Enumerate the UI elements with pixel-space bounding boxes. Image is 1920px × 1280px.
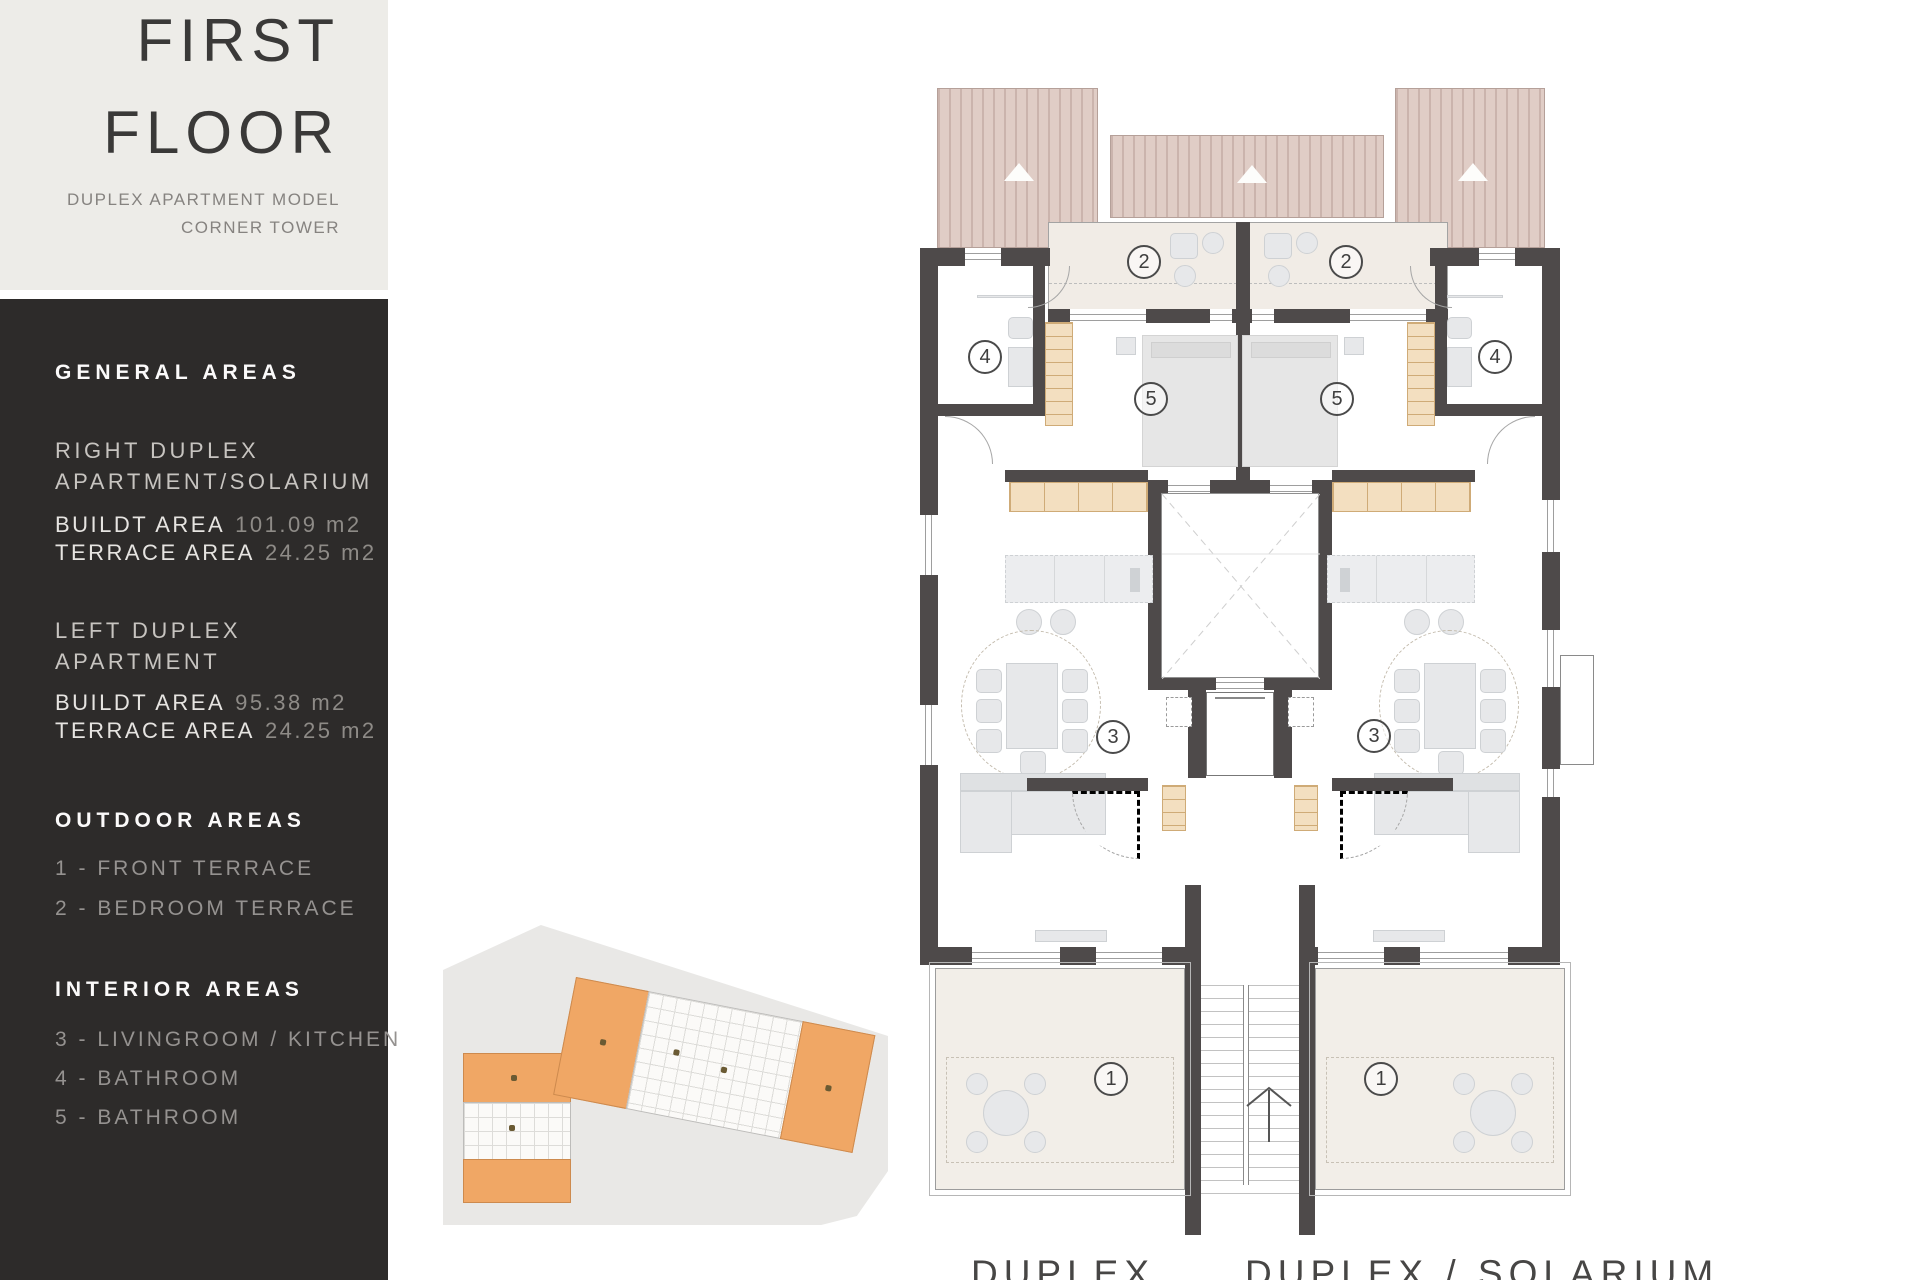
room-marker-bathroom-5: 5 [1134, 382, 1168, 416]
unit-label-duplex-solarium: DUPLEX / SOLARIUM [1245, 1253, 1645, 1280]
sliding-door [1096, 947, 1162, 965]
site-marker-dot [511, 1075, 517, 1081]
terrace-chair [1296, 232, 1318, 254]
site-marker-dot [509, 1125, 515, 1131]
direction-arrow-icon [1241, 1080, 1297, 1150]
stair-wall [1299, 885, 1315, 1235]
page-title-line2: FLOOR [103, 98, 340, 167]
dining-table [1424, 663, 1476, 749]
marker-number: 4 [1489, 346, 1500, 369]
window [1270, 480, 1312, 493]
bathroom-vanity [1008, 347, 1033, 387]
built-area-label: BUILDT AREA [55, 512, 225, 537]
window [1350, 309, 1426, 323]
tv-sideboard [1035, 930, 1107, 942]
entry-door-swing [1072, 791, 1140, 859]
window [920, 515, 938, 575]
window [965, 248, 1001, 266]
dining-chair [976, 669, 1002, 693]
elevator-door [1215, 697, 1265, 699]
terrace-chair [1511, 1073, 1533, 1095]
wall [1332, 470, 1475, 482]
hall-cabinet [1294, 785, 1318, 831]
marker-number: 2 [1138, 251, 1149, 274]
terrace-chair [1268, 265, 1290, 287]
kitchen-sink [1340, 568, 1350, 592]
terrace-chair [966, 1131, 988, 1153]
counter-divider [1104, 556, 1105, 602]
stair-wall [1185, 885, 1201, 1235]
site-building-left-orange-bottom [463, 1159, 571, 1203]
duplex-stair-up [1045, 322, 1073, 426]
marker-number: 1 [1105, 1068, 1116, 1091]
room-marker-bathroom-4: 4 [968, 340, 1002, 374]
built-area-value: 101.09 m2 [235, 512, 361, 537]
counter-divider [1376, 556, 1377, 602]
dining-chair [976, 699, 1002, 723]
shower-screen [977, 295, 1033, 298]
terrace-round-table [983, 1090, 1029, 1136]
terrace-chair [1174, 265, 1196, 287]
bed-pillow [1251, 342, 1331, 358]
site-building-long [553, 977, 875, 1153]
front-terrace-right [1315, 968, 1565, 1190]
terrace-chair [1202, 232, 1224, 254]
marker-number: 3 [1107, 726, 1118, 749]
room-marker-bathroom-5: 5 [1320, 382, 1354, 416]
marker-number: 5 [1331, 388, 1342, 411]
terrace-table [1264, 233, 1292, 259]
sofa-chaise [1468, 791, 1520, 853]
window [1070, 309, 1146, 323]
dining-chair [1394, 669, 1420, 693]
nightstand [1116, 337, 1136, 355]
bed-pillow [1151, 342, 1231, 358]
left-duplex-built-row: BUILDT AREA95.38 m2 [55, 689, 377, 717]
window [1168, 480, 1210, 493]
terrace-chair [966, 1073, 988, 1095]
marker-number: 1 [1375, 1068, 1386, 1091]
front-terrace-left [935, 968, 1185, 1190]
page-title-line1: FIRST [137, 6, 340, 75]
window [1420, 947, 1508, 965]
dining-chair [1062, 699, 1088, 723]
room-marker-bedroom-terrace: 2 [1329, 245, 1363, 279]
floor-plan: 2 2 4 4 5 5 3 3 1 1 [920, 85, 1610, 1280]
site-building-left-orange-top [463, 1053, 571, 1103]
wall [1542, 248, 1560, 965]
legend-item-livingroom-kitchen: 3 - LIVINGROOM / KITCHEN [55, 1028, 401, 1052]
terrace-chair [1453, 1131, 1475, 1153]
terrace-area-value: 24.25 m2 [265, 540, 377, 565]
left-duplex-terrace-row: TERRACE AREA24.25 m2 [55, 717, 377, 745]
outdoor-areas-heading: OUTDOOR AREAS [55, 809, 306, 833]
page-subtitle-line2: CORNER TOWER [181, 218, 340, 238]
left-duplex-name-line2: APARTMENT [55, 646, 241, 677]
kitchen-stool [1404, 609, 1430, 635]
side-balcony [1560, 655, 1594, 765]
dining-chair [1394, 729, 1420, 753]
terrace-area-label: TERRACE AREA [55, 718, 255, 743]
terrace-chair [1024, 1073, 1046, 1095]
wall [1447, 404, 1542, 416]
right-duplex-name-line2: APARTMENT/SOLARIUM [55, 466, 373, 497]
built-area-label: BUILDT AREA [55, 690, 225, 715]
wall [1005, 470, 1148, 482]
wall [938, 404, 1033, 416]
entry-door-swing [1340, 791, 1408, 859]
shaft-dashed-box [1166, 697, 1192, 727]
door-swing [945, 416, 993, 464]
door-swing [1487, 416, 1535, 464]
window [1542, 630, 1560, 687]
dining-chair [1438, 751, 1464, 775]
legend-item-bathroom-5: 5 - BATHROOM [55, 1106, 241, 1130]
dining-table [1006, 663, 1058, 749]
window [920, 705, 938, 765]
right-duplex-terrace-row: TERRACE AREA24.25 m2 [55, 539, 377, 567]
shower-screen [1447, 295, 1503, 298]
marker-number: 4 [979, 346, 990, 369]
dining-chair [1394, 699, 1420, 723]
wall [920, 248, 938, 965]
roof-vent-icon [1458, 163, 1488, 181]
dining-area [961, 630, 1101, 780]
roof-vent-icon [1237, 165, 1267, 183]
kitchen-sink [1130, 568, 1140, 592]
floorplan-sheet: { "title_block": { "title_line1": "FIRST… [0, 0, 1920, 1280]
closet [1332, 482, 1471, 512]
toilet [1008, 317, 1033, 339]
kitchen-stool [1050, 609, 1076, 635]
terrace-chair [1511, 1131, 1533, 1153]
window [1210, 309, 1232, 323]
hall-cabinet [1162, 785, 1186, 831]
marker-number: 2 [1340, 251, 1351, 274]
window [1542, 769, 1560, 797]
general-areas-heading: GENERAL AREAS [55, 361, 301, 385]
unit-label-duplex: DUPLEX [938, 1253, 1188, 1280]
marker-number: 5 [1145, 388, 1156, 411]
dining-chair [1020, 751, 1046, 775]
site-building-left-white-mid [463, 1102, 571, 1160]
terrace-area-label: TERRACE AREA [55, 540, 255, 565]
right-duplex-areas: BUILDT AREA101.09 m2 TERRACE AREA24.25 m… [55, 511, 377, 567]
legend-item-bedroom-terrace: 2 - BEDROOM TERRACE [55, 897, 357, 921]
staircase [1201, 900, 1299, 1265]
terrace-area-value: 24.25 m2 [265, 718, 377, 743]
dining-chair [1062, 729, 1088, 753]
roof-vent-icon [1004, 163, 1034, 181]
page-subtitle-line1: DUPLEX APARTMENT MODEL [67, 190, 340, 210]
legend-item-front-terrace: 1 - FRONT TERRACE [55, 857, 314, 881]
dining-chair [1062, 669, 1088, 693]
room-marker-front-terrace: 1 [1094, 1062, 1128, 1096]
light-well [1161, 493, 1319, 678]
title-block: FIRST FLOOR DUPLEX APARTMENT MODEL CORNE… [0, 0, 388, 290]
right-duplex-name: RIGHT DUPLEX APARTMENT/SOLARIUM [55, 435, 373, 497]
legend-sidebar: GENERAL AREAS RIGHT DUPLEX APARTMENT/SOL… [0, 299, 388, 1280]
dining-chair [1480, 729, 1506, 753]
sofa-chaise [960, 791, 1012, 853]
kitchen-counter [1327, 555, 1475, 603]
counter-divider [1426, 556, 1427, 602]
room-marker-living-kitchen: 3 [1096, 720, 1130, 754]
right-duplex-name-line1: RIGHT DUPLEX [55, 435, 373, 466]
dining-chair [1480, 699, 1506, 723]
dining-chair [976, 729, 1002, 753]
tv-sideboard [1373, 930, 1445, 942]
wall [1027, 778, 1148, 791]
room-marker-bedroom-terrace: 2 [1127, 245, 1161, 279]
wall [1332, 778, 1453, 791]
toilet [1447, 317, 1472, 339]
shaft-dashed-box [1288, 697, 1314, 727]
window [972, 947, 1060, 965]
site-building-long-white-mid [626, 991, 804, 1139]
right-duplex-built-row: BUILDT AREA101.09 m2 [55, 511, 377, 539]
dining-area [1379, 630, 1519, 780]
terrace-round-table [1470, 1090, 1516, 1136]
sliding-door [1318, 947, 1384, 965]
site-plan-thumbnail [443, 925, 888, 1225]
elevator [1206, 692, 1274, 776]
light-well-x [1162, 494, 1320, 679]
counter-divider [1054, 556, 1055, 602]
window [1542, 500, 1560, 552]
room-marker-front-terrace: 1 [1364, 1062, 1398, 1096]
terrace-table [1170, 233, 1198, 259]
duplex-stair-up [1407, 322, 1435, 426]
terrace-chair [1453, 1073, 1475, 1095]
interior-areas-heading: INTERIOR AREAS [55, 978, 304, 1002]
room-marker-bathroom-4: 4 [1478, 340, 1512, 374]
bathroom-vanity [1447, 347, 1472, 387]
dining-chair [1480, 669, 1506, 693]
window [1479, 248, 1515, 266]
left-duplex-name: LEFT DUPLEX APARTMENT [55, 615, 241, 677]
marker-number: 3 [1368, 725, 1379, 748]
left-duplex-name-line1: LEFT DUPLEX [55, 615, 241, 646]
nightstand [1344, 337, 1364, 355]
window [1252, 309, 1274, 323]
built-area-value: 95.38 m2 [235, 690, 347, 715]
closet [1009, 482, 1148, 512]
left-duplex-areas: BUILDT AREA95.38 m2 TERRACE AREA24.25 m2 [55, 689, 377, 745]
terrace-chair [1024, 1131, 1046, 1153]
legend-item-bathroom-4: 4 - BATHROOM [55, 1067, 241, 1091]
room-marker-living-kitchen: 3 [1357, 719, 1391, 753]
kitchen-counter [1005, 555, 1153, 603]
